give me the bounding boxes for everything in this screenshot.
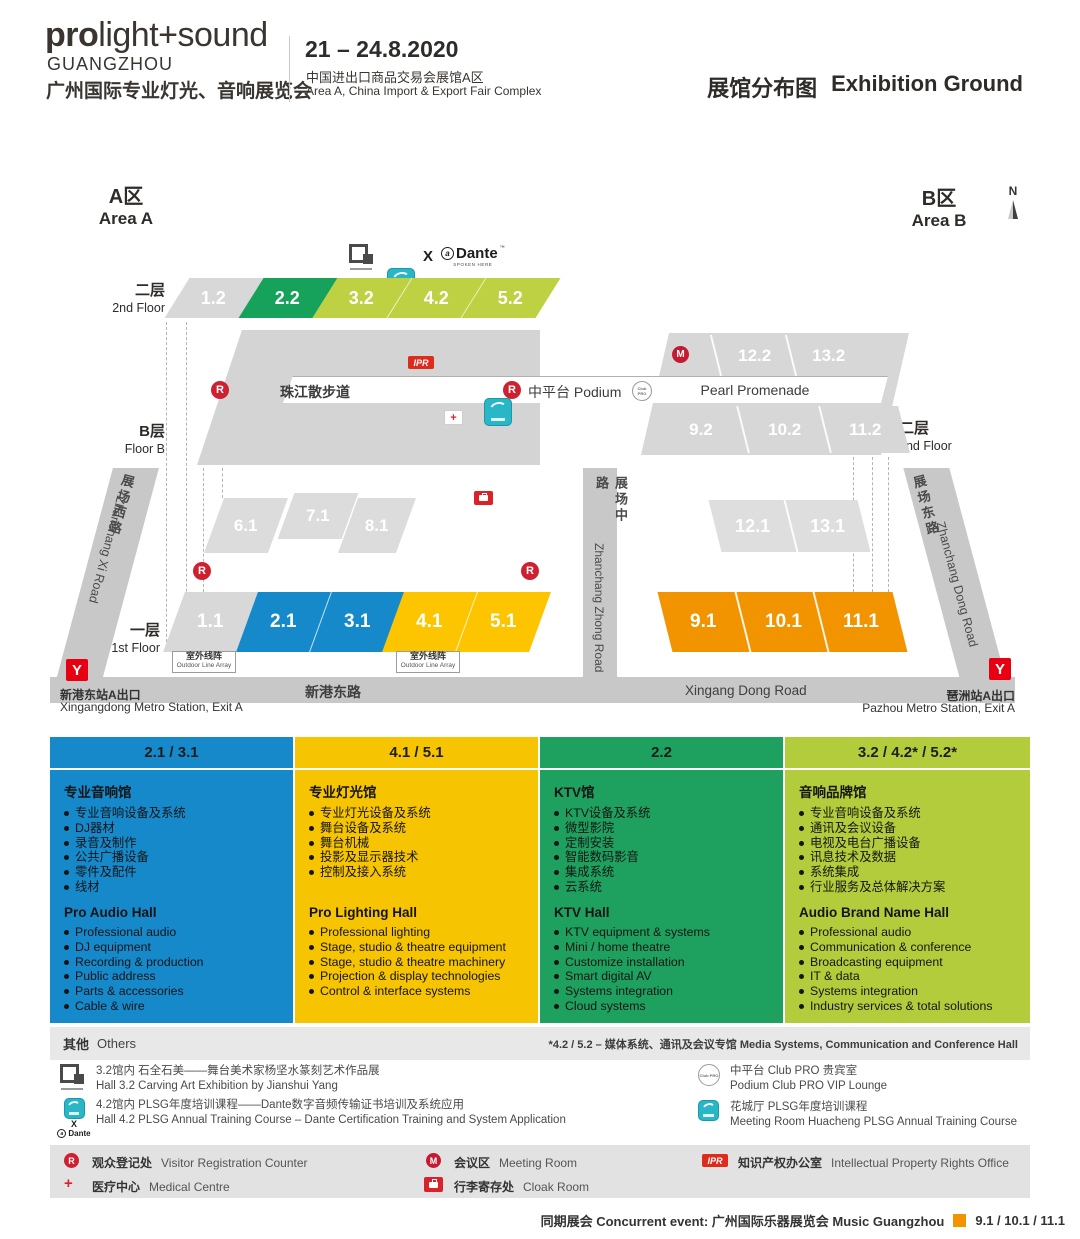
area-b-cn: B区 bbox=[903, 188, 975, 211]
column-body-pro-audio: 专业音响馆 专业音响设备及系统DJ器材录音及制作公共广播设备零件及配件线材 Pr… bbox=[50, 770, 293, 1023]
concurrent-halls: 9.1 / 10.1 / 11.1 bbox=[975, 1213, 1065, 1228]
event-line-cn: 4.2馆内 PLSG年度培训课程——Dante数字音频传输证书培训及系统应用 bbox=[96, 1098, 566, 1113]
floorb-label: B层 Floor B bbox=[95, 423, 165, 457]
outdoor-line-array-left: 室外线阵 Outdoor Line Array bbox=[172, 651, 236, 673]
cn-bullet-list: 专业音响设备及系统DJ器材录音及制作公共广播设备零件及配件线材 bbox=[64, 806, 279, 895]
plsg-icon bbox=[64, 1098, 85, 1119]
zhanchang-zhong-road-cn: 展场中路 bbox=[592, 476, 630, 536]
brand-logo: prolight+sound bbox=[45, 16, 268, 55]
cn-bullet-list: 专业音响设备及系统通讯及会议设备电视及电台广播设备讯息技术及数据系统集成行业服务… bbox=[799, 806, 1016, 895]
column-cn-title: 专业音响馆 bbox=[64, 781, 279, 801]
compass-n-label: N bbox=[1006, 184, 1020, 198]
event-carving: 3.2馆内 石全石美——舞台美术家杨坚水篆刻艺术作品展 Hall 3.2 Car… bbox=[60, 1064, 380, 1093]
compass-arrow-icon bbox=[1008, 200, 1018, 219]
floor2b-cn: 二层 bbox=[899, 420, 979, 439]
xingang-road-cn: 新港东路 bbox=[305, 682, 361, 702]
column-header-2.2: 2.2 bbox=[540, 737, 783, 768]
event-line-cn: 花城厅 PLSG年度培训课程 bbox=[730, 1100, 1017, 1115]
others-cn: 其他 bbox=[63, 1034, 89, 1053]
hall-12.2: 12.2 bbox=[710, 335, 797, 376]
floor2-cn: 二层 bbox=[95, 282, 165, 301]
dante-sub: SPOKEN HERE bbox=[453, 262, 492, 267]
zhujiang-promenade-label: 珠江散步道 bbox=[270, 382, 360, 402]
bullet-item: DJ器材 bbox=[64, 821, 279, 836]
dante-logo-icon: aDante™ SPOKEN HERE bbox=[441, 245, 505, 267]
leader-line bbox=[872, 457, 873, 592]
column-cn-title: 音响品牌馆 bbox=[799, 781, 1016, 801]
dante-logo-icon: aDante bbox=[57, 1129, 90, 1138]
venue-en: Area A, China Import & Export Fair Compl… bbox=[306, 84, 541, 98]
bullet-item: Professional audio bbox=[64, 925, 283, 940]
club-pro-icon: Club PRO bbox=[698, 1064, 720, 1086]
registration-icon: R bbox=[503, 381, 521, 399]
bullet-item: Systems integration bbox=[554, 984, 773, 999]
podium-label: 中平台 Podium bbox=[528, 382, 621, 402]
plsg-icon bbox=[484, 398, 512, 426]
column-en-title: KTV Hall bbox=[554, 905, 773, 920]
page-title-cn: 展馆分布图 bbox=[707, 71, 817, 103]
event-line-cn: 中平台 Club PRO 贵宾室 bbox=[730, 1064, 887, 1079]
bullet-item: Parts & accessories bbox=[64, 984, 283, 999]
ipr-icon: IPR bbox=[702, 1154, 728, 1167]
zhanchang-zhong-road-en: Zhanchang Zhong Road bbox=[592, 543, 606, 672]
x-mark: X bbox=[71, 1119, 77, 1129]
metro-icon: Y bbox=[66, 659, 88, 681]
plsg-icon bbox=[698, 1100, 719, 1121]
others-note: *4.2 / 5.2 – 媒体系统、通讯及会议专馆 Media Systems,… bbox=[549, 1036, 1018, 1052]
facility-cn: 知识产权办公室 bbox=[738, 1156, 822, 1170]
facility-cn: 观众登记处 bbox=[92, 1156, 152, 1170]
hall-9.1: 9.1 bbox=[658, 592, 750, 652]
bullet-item: 电视及电台广播设备 bbox=[799, 836, 1016, 851]
others-en: Others bbox=[97, 1036, 136, 1051]
facility-en: Cloak Room bbox=[523, 1180, 589, 1194]
bullet-item: Projection & display technologies bbox=[309, 969, 528, 984]
event-huacheng: 花城厅 PLSG年度培训课程 Meeting Room Huacheng PLS… bbox=[698, 1100, 1017, 1129]
bullet-item: 定制安装 bbox=[554, 836, 769, 851]
column-body-ktv: KTV馆 KTV设备及系统微型影院定制安装智能数码影音集成系统云系统 KTV H… bbox=[540, 770, 783, 1023]
hall-10.2: 10.2 bbox=[736, 406, 832, 453]
carving-art-icon bbox=[60, 1064, 86, 1090]
bullet-item: 集成系统 bbox=[554, 865, 769, 880]
hall-9.2: 9.2 bbox=[654, 406, 748, 453]
column-en-title: Audio Brand Name Hall bbox=[799, 905, 1020, 920]
facility-ipr: 知识产权办公室Intellectual Property Rights Offi… bbox=[738, 1154, 1009, 1172]
page-title: 展馆分布图 Exhibition Ground bbox=[707, 71, 1023, 103]
hall-12.1: 12.1 bbox=[709, 500, 797, 552]
area-a-cn: A区 bbox=[90, 186, 162, 209]
registration-icon: R bbox=[193, 562, 211, 580]
metro-left-en: Xingangdong Metro Station, Exit A bbox=[60, 700, 243, 714]
bullet-item: Public address bbox=[64, 969, 283, 984]
bullet-item: 系统集成 bbox=[799, 865, 1016, 880]
dante-name: Dante bbox=[456, 245, 498, 262]
bullet-item: Broadcasting equipment bbox=[799, 955, 1020, 970]
event-line-en: Meeting Room Huacheng PLSG Annual Traini… bbox=[730, 1115, 1017, 1130]
event-dates: 21 – 24.8.2020 bbox=[305, 36, 458, 63]
bullet-item: 专业音响设备及系统 bbox=[799, 806, 1016, 821]
bullet-item: 微型影院 bbox=[554, 821, 769, 836]
bullet-item: Customize installation bbox=[554, 955, 773, 970]
meeting-room-icon: M bbox=[426, 1153, 441, 1168]
floorb-cn: B层 bbox=[95, 423, 165, 442]
event-text: 3.2馆内 石全石美——舞台美术家杨坚水篆刻艺术作品展 Hall 3.2 Car… bbox=[96, 1064, 380, 1093]
en-bullet-list: Professional audioCommunication & confer… bbox=[799, 925, 1020, 1014]
en-block: KTV Hall KTV equipment & systemsMini / h… bbox=[554, 905, 773, 1014]
bullet-item: Professional audio bbox=[799, 925, 1020, 940]
outdoor-cn: 室外线阵 bbox=[397, 652, 459, 662]
club-pro-icon: Club PRO bbox=[632, 381, 652, 401]
column-body-pro-lighting: 专业灯光馆 专业灯光设备及系统舞台设备及系统舞台机械投影及显示器技术控制及接入系… bbox=[295, 770, 538, 1023]
hall-6.1: 6.1 bbox=[204, 498, 288, 553]
event-line-en: Podium Club PRO VIP Lounge bbox=[730, 1079, 887, 1094]
bullet-item: 舞台机械 bbox=[309, 836, 524, 851]
outdoor-line-array-right: 室外线阵 Outdoor Line Array bbox=[396, 651, 460, 673]
column-cn-title: 专业灯光馆 bbox=[309, 781, 524, 801]
bullet-item: 专业灯光设备及系统 bbox=[309, 806, 524, 821]
cloak-room-icon bbox=[474, 491, 493, 505]
bullet-item: 讯息技术及数据 bbox=[799, 850, 1016, 865]
orange-legend-icon bbox=[953, 1214, 966, 1227]
brand-cn: 广州国际专业灯光、音响展览会 bbox=[46, 76, 312, 103]
bullet-item: 控制及接入系统 bbox=[309, 865, 524, 880]
hall-13.2: 13.2 bbox=[785, 335, 870, 376]
page-title-en: Exhibition Ground bbox=[831, 71, 1023, 103]
brand-city: GUANGZHOU bbox=[47, 54, 173, 75]
en-block: Pro Lighting Hall Professional lightingS… bbox=[309, 905, 528, 999]
column-cn-title: KTV馆 bbox=[554, 781, 769, 801]
area-b-en: Area B bbox=[903, 211, 975, 231]
en-block: Pro Audio Hall Professional audioDJ equi… bbox=[64, 905, 283, 1014]
cn-bullet-list: KTV设备及系统微型影院定制安装智能数码影音集成系统云系统 bbox=[554, 806, 769, 895]
registration-icon: R bbox=[64, 1153, 79, 1168]
medical-icon: + bbox=[444, 410, 463, 425]
header-divider bbox=[289, 36, 290, 102]
facility-meeting: 会议区Meeting Room bbox=[454, 1154, 577, 1172]
bullet-item: Stage, studio & theatre machinery bbox=[309, 955, 528, 970]
bullet-item: KTV设备及系统 bbox=[554, 806, 769, 821]
bullet-item: Stage, studio & theatre equipment bbox=[309, 940, 528, 955]
leader-line bbox=[166, 322, 167, 652]
column-header-3.2-4.2-5.2: 3.2 / 4.2* / 5.2* bbox=[785, 737, 1030, 768]
area-a-en: Area A bbox=[90, 209, 162, 229]
facility-en: Visitor Registration Counter bbox=[161, 1156, 308, 1170]
facility-en: Intellectual Property Rights Office bbox=[831, 1156, 1009, 1170]
concurrent-event-row: 同期展会 Concurrent event: 广州国际乐器展览会 Music G… bbox=[541, 1211, 1065, 1230]
registration-icon: R bbox=[211, 381, 229, 399]
outdoor-en: Outdoor Line Array bbox=[397, 662, 459, 669]
x-mark: X bbox=[423, 248, 433, 265]
bullet-item: Industry services & total solutions bbox=[799, 999, 1020, 1014]
event-text: 4.2馆内 PLSG年度培训课程——Dante数字音频传输证书培训及系统应用 H… bbox=[96, 1098, 566, 1127]
bullet-item: DJ equipment bbox=[64, 940, 283, 955]
column-en-title: Pro Audio Hall bbox=[64, 905, 283, 920]
floor2b-label: 二层 2nd Floor bbox=[899, 420, 979, 454]
bullet-item: 零件及配件 bbox=[64, 865, 279, 880]
plsg-dante-icon: X aDante bbox=[60, 1098, 88, 1138]
floor2-en: 2nd Floor bbox=[95, 301, 165, 317]
outdoor-cn: 室外线阵 bbox=[173, 652, 235, 662]
bullet-item: Cable & wire bbox=[64, 999, 283, 1014]
column-body-audio-brand: 音响品牌馆 专业音响设备及系统通讯及会议设备电视及电台广播设备讯息技术及数据系统… bbox=[785, 770, 1030, 1023]
hall-13.1: 13.1 bbox=[784, 500, 871, 552]
bullet-item: 通讯及会议设备 bbox=[799, 821, 1016, 836]
facility-en: Medical Centre bbox=[149, 1180, 230, 1194]
bullet-item: Communication & conference bbox=[799, 940, 1020, 955]
bullet-item: Systems integration bbox=[799, 984, 1020, 999]
event-plsg-dante: X aDante 4.2馆内 PLSG年度培训课程——Dante数字音频传输证书… bbox=[60, 1098, 566, 1138]
cloak-room-icon bbox=[424, 1177, 443, 1192]
event-text: 花城厅 PLSG年度培训课程 Meeting Room Huacheng PLS… bbox=[730, 1100, 1017, 1129]
facility-en: Meeting Room bbox=[499, 1156, 577, 1170]
event-line-en: Hall 3.2 Carving Art Exhibition by Jians… bbox=[96, 1079, 380, 1094]
medical-icon: + bbox=[64, 1176, 73, 1191]
bullet-item: KTV equipment & systems bbox=[554, 925, 773, 940]
brand-light: light+sound bbox=[98, 16, 267, 54]
event-club-pro: Club PRO 中平台 Club PRO 贵宾室 Podium Club PR… bbox=[698, 1064, 887, 1093]
metro-right-en: Pazhou Metro Station, Exit A bbox=[790, 701, 1015, 715]
registration-icon: R bbox=[521, 562, 539, 580]
bullet-item: 线材 bbox=[64, 880, 279, 895]
carving-art-icon bbox=[349, 244, 375, 270]
facility-medical: 医疗中心Medical Centre bbox=[92, 1178, 230, 1196]
facility-registration: 观众登记处Visitor Registration Counter bbox=[92, 1154, 308, 1172]
leader-line bbox=[888, 457, 889, 592]
others-band: 其他 Others *4.2 / 5.2 – 媒体系统、通讯及会议专馆 Medi… bbox=[50, 1027, 1030, 1060]
ipr-icon: IPR bbox=[408, 356, 434, 369]
floor2-label: 二层 2nd Floor bbox=[95, 282, 165, 316]
pearl-promenade-label: Pearl Promenade bbox=[694, 382, 816, 398]
bullet-item: 专业音响设备及系统 bbox=[64, 806, 279, 821]
event-text: 中平台 Club PRO 贵宾室 Podium Club PRO VIP Lou… bbox=[730, 1064, 887, 1093]
bullet-item: 录音及制作 bbox=[64, 836, 279, 851]
en-bullet-list: Professional lightingStage, studio & the… bbox=[309, 925, 528, 999]
meeting-room-icon: M bbox=[672, 346, 689, 363]
bullet-item: Recording & production bbox=[64, 955, 283, 970]
area-b-label: B区 Area B bbox=[903, 188, 975, 231]
facilities-band: R 观众登记处Visitor Registration Counter M 会议… bbox=[50, 1145, 1030, 1198]
xingang-road-en: Xingang Dong Road bbox=[685, 683, 807, 698]
en-bullet-list: Professional audioDJ equipmentRecording … bbox=[64, 925, 283, 1014]
bullet-item: Mini / home theatre bbox=[554, 940, 773, 955]
brand-bold: pro bbox=[45, 16, 98, 54]
bullet-item: 云系统 bbox=[554, 880, 769, 895]
outdoor-en: Outdoor Line Array bbox=[173, 662, 235, 669]
event-line-cn: 3.2馆内 石全石美——舞台美术家杨坚水篆刻艺术作品展 bbox=[96, 1064, 380, 1079]
bullet-item: Control & interface systems bbox=[309, 984, 528, 999]
bullet-item: Smart digital AV bbox=[554, 969, 773, 984]
floor2b-en: 2nd Floor bbox=[899, 439, 979, 455]
bullet-item: 行业服务及总体解决方案 bbox=[799, 880, 1016, 895]
bullet-item: Cloud systems bbox=[554, 999, 773, 1014]
hall-11.1: 11.1 bbox=[813, 592, 908, 652]
bullet-item: 投影及显示器技术 bbox=[309, 850, 524, 865]
floorb-en: Floor B bbox=[95, 442, 165, 458]
hall-11.2: 11.2 bbox=[818, 406, 910, 453]
facility-cn: 医疗中心 bbox=[92, 1180, 140, 1194]
facility-cloak: 行李寄存处Cloak Room bbox=[454, 1178, 589, 1196]
bullet-item: 舞台设备及系统 bbox=[309, 821, 524, 836]
concurrent-event-text: 同期展会 Concurrent event: 广州国际乐器展览会 Music G… bbox=[541, 1211, 945, 1230]
event-line-en: Hall 4.2 PLSG Annual Training Course – D… bbox=[96, 1113, 566, 1128]
exhibition-ground-map: prolight+sound GUANGZHOU 广州国际专业灯光、音响展览会 … bbox=[0, 0, 1080, 1239]
column-en-title: Pro Lighting Hall bbox=[309, 905, 528, 920]
metro-icon: Y bbox=[989, 658, 1011, 680]
area-a-label: A区 Area A bbox=[90, 186, 162, 229]
cn-bullet-list: 专业灯光设备及系统舞台设备及系统舞台机械投影及显示器技术控制及接入系统 bbox=[309, 806, 524, 880]
facility-cn: 行李寄存处 bbox=[454, 1180, 514, 1194]
bullet-item: IT & data bbox=[799, 969, 1020, 984]
en-block: Audio Brand Name Hall Professional audio… bbox=[799, 905, 1020, 1014]
bullet-item: 公共广播设备 bbox=[64, 850, 279, 865]
leader-line bbox=[222, 468, 223, 498]
bullet-item: Professional lighting bbox=[309, 925, 528, 940]
facility-cn: 会议区 bbox=[454, 1156, 490, 1170]
column-header-2.1-3.1: 2.1 / 3.1 bbox=[50, 737, 293, 768]
column-header-4.1-5.1: 4.1 / 5.1 bbox=[295, 737, 538, 768]
en-bullet-list: KTV equipment & systemsMini / home theat… bbox=[554, 925, 773, 1014]
bullet-item: 智能数码影音 bbox=[554, 850, 769, 865]
